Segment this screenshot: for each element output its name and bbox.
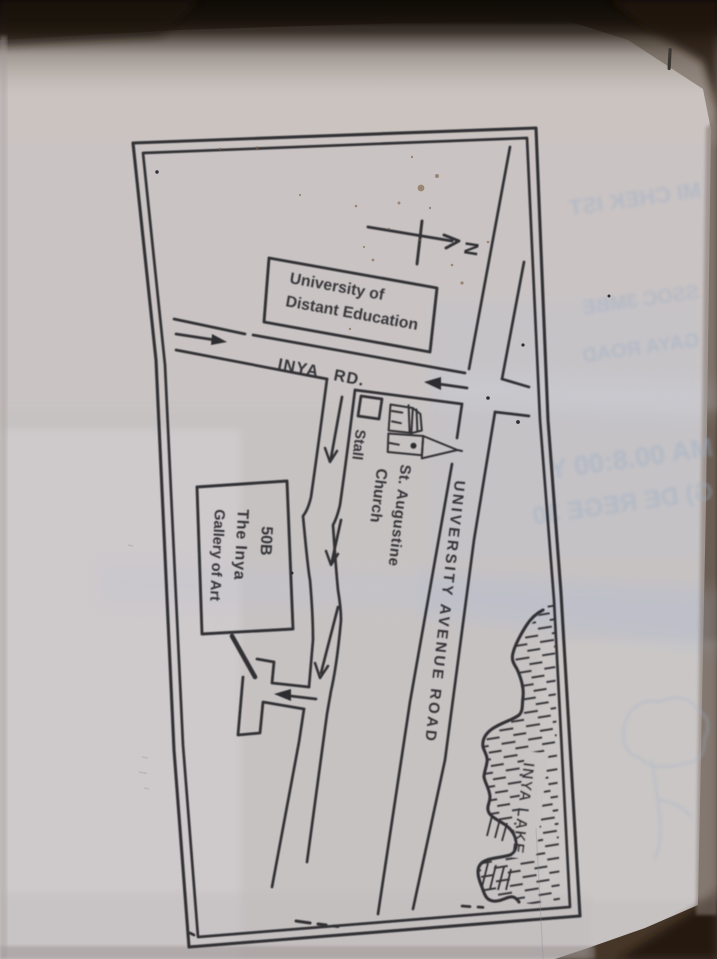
svg-text:50B: 50B [256,526,275,556]
